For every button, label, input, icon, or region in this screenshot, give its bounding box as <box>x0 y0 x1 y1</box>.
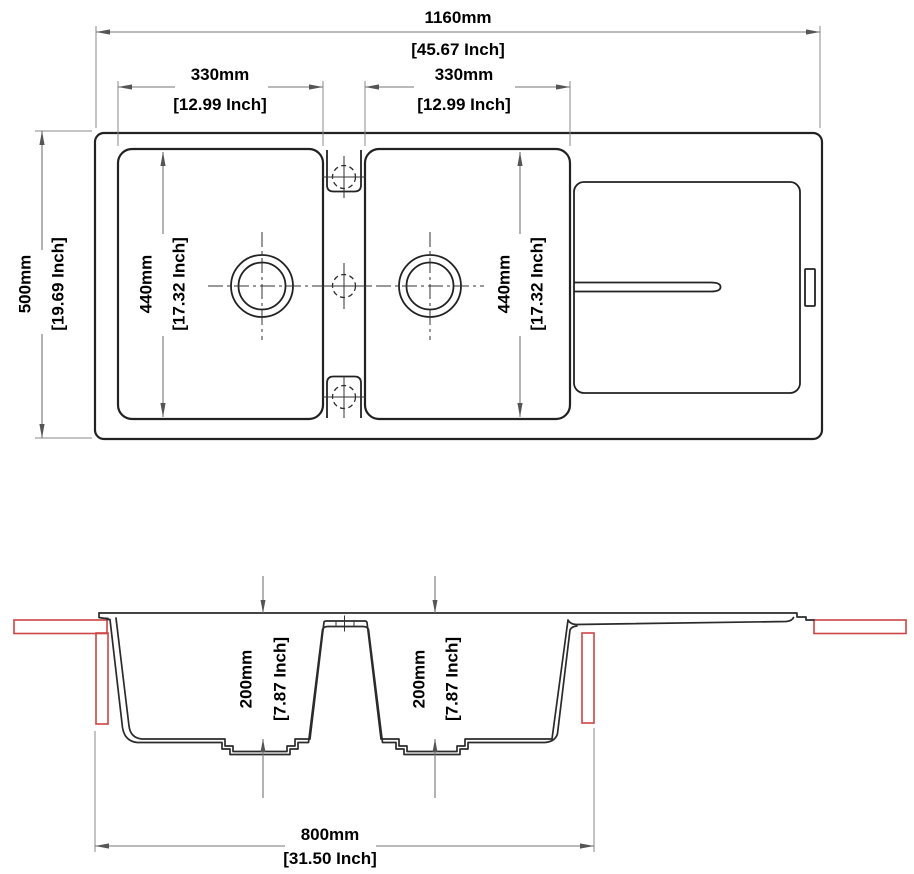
drainboard <box>574 182 800 393</box>
right-drain-hole <box>376 232 484 340</box>
mounting-hole-top <box>322 156 366 198</box>
dim-right-bowl-length: 440mm [17.32 Inch] <box>494 152 546 417</box>
left-drain-hole <box>208 232 316 340</box>
dim-right-bowl-depth-inch: [7.87 Inch] <box>442 637 461 721</box>
cabinet-panel-right <box>582 633 594 723</box>
dim-overall-width-mm: 1160mm <box>424 8 491 27</box>
dim-right-bowl-width-mm: 330mm <box>435 65 494 84</box>
dim-overall-depth: 500mm [19.69 Inch] <box>15 131 92 438</box>
divider-notch <box>336 616 354 632</box>
dim-right-bowl-length-inch: [17.32 Inch] <box>527 237 546 331</box>
countertop-right <box>814 620 906 634</box>
dim-left-bowl-length-mm: 440mm <box>136 255 155 314</box>
dim-right-bowl-depth-mm: 200mm <box>409 650 428 709</box>
dim-right-bowl-width-inch: [12.99 Inch] <box>417 95 511 114</box>
dim-left-bowl-width-mm: 330mm <box>191 65 250 84</box>
dim-overall-depth-mm: 500mm <box>15 255 34 314</box>
drainboard-groove <box>574 283 721 292</box>
dim-left-bowl-length-inch: [17.32 Inch] <box>169 237 188 331</box>
section-view: 200mm [7.87 Inch] 200mm [7.87 Inch] 800m… <box>14 576 906 868</box>
mounting-hole-bottom <box>322 376 366 418</box>
dim-left-bowl-depth-mm: 200mm <box>236 650 255 709</box>
overflow-slot <box>805 269 815 306</box>
dim-right-bowl-depth: 200mm [7.87 Inch] <box>409 576 461 798</box>
dim-cabinet-width-inch: [31.50 Inch] <box>283 849 377 868</box>
cabinet-panel-left <box>96 633 108 724</box>
dim-cabinet-width: 800mm [31.50 Inch] <box>95 728 594 868</box>
dim-left-bowl-depth-inch: [7.87 Inch] <box>270 637 289 721</box>
dim-overall-width-inch: [45.67 Inch] <box>411 40 505 59</box>
dim-cabinet-width-mm: 800mm <box>301 825 360 844</box>
technical-drawing: 1160mm [45.67 Inch] 330mm [12.99 Inch] 3… <box>0 0 914 874</box>
dim-left-bowl-length: 440mm [17.32 Inch] <box>136 152 188 417</box>
dim-overall-depth-inch: [19.69 Inch] <box>48 237 67 331</box>
top-view: 1160mm [45.67 Inch] 330mm [12.99 Inch] 3… <box>15 8 822 439</box>
mounting-hole-middle <box>316 263 372 309</box>
dim-right-bowl-length-mm: 440mm <box>494 255 513 314</box>
dim-left-bowl-width-inch: [12.99 Inch] <box>173 95 267 114</box>
dim-left-bowl-depth: 200mm [7.87 Inch] <box>236 576 289 798</box>
countertop-left <box>14 620 107 634</box>
